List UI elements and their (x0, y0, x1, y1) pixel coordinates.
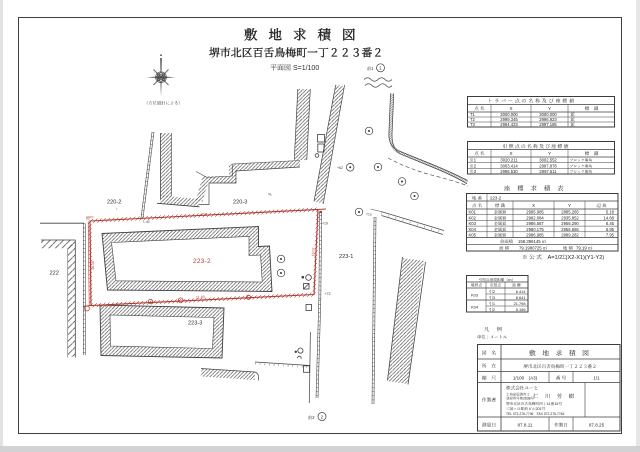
svg-text:79.1980725 ㎡: 79.1980725 ㎡ (519, 246, 548, 252)
svg-text:4.26: 4.26 (200, 213, 207, 218)
svg-text:引2: 引2 (489, 307, 495, 313)
svg-text:倍面積: 倍面積 (500, 239, 514, 245)
svg-text:前2: 前2 (308, 415, 315, 421)
svg-text:223-2: 223-2 (490, 196, 502, 202)
svg-text:220-3: 220-3 (233, 198, 247, 206)
svg-text:標 識: 標 識 (585, 106, 599, 112)
svg-text:敷地求積図: 敷地求積図 (529, 348, 595, 358)
svg-text:敷地求積図: 敷地求積図 (244, 24, 367, 44)
svg-text:6.414: 6.414 (516, 290, 527, 295)
svg-text:※ 公 式 A=1/2Σ(X2-X1)(Y1-Y2): ※ 公 式 A=1/2Σ(X2-X1)(Y1-Y2) (522, 253, 604, 261)
svg-text:単位：メートル: 単位：メートル (477, 335, 508, 341)
svg-text:18.07: 18.07 (311, 247, 316, 256)
svg-text:1/100 (A3): 1/100 (A3) (513, 375, 538, 381)
svg-text:223-2: 223-2 (193, 256, 211, 265)
svg-text:ト: ト (115, 207, 118, 211)
svg-text:（方位磁針による）: （方位磁針による） (144, 101, 183, 107)
svg-text:面 積: 面 積 (499, 246, 509, 252)
svg-text:引照点: 引照点 (490, 283, 502, 289)
svg-text:登録番号第2638号: 登録番号第2638号 (506, 396, 534, 401)
svg-text:223-1: 223-1 (339, 252, 353, 260)
svg-text:2996.530: 2996.530 (500, 169, 518, 175)
svg-text:点 名: 点 名 (472, 203, 482, 209)
svg-text:2986.985: 2986.985 (526, 233, 544, 239)
svg-text:平面図 S=1/100: 平面図 S=1/100 (270, 63, 319, 73)
svg-text:点 名: 点 名 (474, 151, 485, 157)
svg-text:21.798: 21.798 (514, 302, 526, 307)
svg-text:K04: K04 (471, 305, 479, 311)
svg-text:Y: Y (548, 151, 551, 157)
svg-text:前1: 前1 (367, 66, 374, 72)
svg-text:2994.423: 2994.423 (500, 122, 518, 128)
svg-text:ブロック塀角: ブロック塀角 (570, 169, 593, 175)
svg-text:堺市北区百舌鳥梅町一丁２２３番２: 堺市北区百舌鳥梅町一丁２２３番２ (523, 364, 597, 370)
svg-text:引照点地境距離（ｍ）: 引照点地境距離（ｍ） (479, 277, 516, 283)
svg-text:縮 尺: 縮 尺 (482, 374, 497, 381)
svg-text:番 号: 番 号 (556, 375, 567, 381)
svg-text:作製者: 作製者 (482, 397, 497, 404)
svg-text:79.19 ㎡: 79.19 ㎡ (576, 246, 593, 252)
svg-text:地 番: 地 番 (472, 196, 483, 202)
svg-text:222: 222 (50, 269, 59, 277)
svg-text:2889.282: 2889.282 (561, 233, 579, 239)
svg-text:16.15: 16.15 (91, 261, 96, 270)
svg-text:11.40: 11.40 (196, 295, 205, 300)
svg-text:引3: 引3 (470, 169, 477, 175)
svg-text:+73: +73 (325, 292, 331, 297)
svg-text:所 在: 所 在 (482, 363, 497, 370)
svg-text:引照点の名称及び座標値: 引照点の名称及び座標値 (503, 143, 570, 150)
svg-text:2997.511: 2997.511 (539, 169, 557, 175)
svg-text:62: 62 (86, 216, 90, 221)
svg-text:仁 川 芳 樹: 仁 川 芳 樹 (533, 392, 577, 400)
svg-text:+19: +19 (322, 222, 328, 227)
svg-text:標 識: 標 識 (495, 203, 506, 209)
svg-text:T3: T3 (470, 122, 476, 128)
svg-text:T1a: T1a (366, 212, 372, 217)
svg-text:金属鋲: 金属鋲 (494, 233, 507, 239)
svg-text:辺 長: 辺 長 (596, 203, 607, 209)
svg-text:引2: 引2 (489, 289, 495, 295)
svg-text:X: X (532, 203, 535, 209)
svg-text:X: X (509, 151, 512, 157)
svg-text:+62: +62 (337, 166, 343, 171)
svg-text:1/1: 1/1 (593, 375, 600, 381)
svg-text:堺市北区百舌鳥梅町一丁２２３番２: 堺市北区百舌鳥梅町一丁２２３番２ (209, 45, 383, 61)
svg-text:8.641: 8.641 (516, 296, 526, 301)
svg-text:地 積: 地 積 (563, 246, 573, 252)
svg-text:測量日: 測量日 (482, 422, 497, 429)
svg-text:距 離: 距 離 (512, 283, 521, 289)
svg-text:5.156: 5.156 (516, 308, 526, 313)
svg-text:X: X (509, 106, 512, 112)
svg-text:作製日: 作製日 (554, 423, 568, 429)
svg-text:Y: Y (548, 106, 551, 112)
svg-text:境界点: 境界点 (471, 283, 483, 289)
svg-text:158.396145 ㎡: 158.396145 ㎡ (518, 239, 547, 245)
svg-text:図 名: 図 名 (482, 350, 497, 357)
svg-text:220-2: 220-2 (107, 198, 121, 206)
svg-text:トラバー点の名称及び座標値: トラバー点の名称及び座標値 (488, 98, 576, 105)
svg-text:7.95: 7.95 (606, 233, 615, 239)
svg-text:凡 例: 凡 例 (484, 326, 505, 333)
svg-text:座標求積表: 座標求積表 (504, 184, 570, 193)
svg-text:TEL 072-276-7746 FAX 072-276-7: TEL 072-276-7746 FAX 072-276-7746 (506, 411, 565, 416)
svg-text:ブロック塀角: ブロック塀角 (570, 158, 593, 164)
svg-text:引3: 引3 (489, 295, 495, 301)
svg-text:標 識: 標 識 (585, 151, 599, 157)
svg-text:Ta: Ta (268, 192, 272, 197)
svg-text:K05: K05 (469, 233, 477, 239)
svg-text:K03: K03 (471, 293, 479, 299)
svg-text:ブロック塀角: ブロック塀角 (570, 163, 593, 169)
svg-text:Y: Y (568, 203, 571, 209)
svg-text:点 名: 点 名 (474, 106, 485, 112)
svg-text:引1: 引1 (489, 301, 495, 307)
svg-text:223-3: 223-3 (188, 319, 202, 327)
svg-text:87.8.11: 87.8.11 (518, 423, 533, 429)
svg-text:1.40: 1.40 (143, 219, 150, 224)
svg-text:2997.185: 2997.185 (539, 122, 557, 128)
svg-text:87.8.25: 87.8.25 (589, 423, 605, 429)
